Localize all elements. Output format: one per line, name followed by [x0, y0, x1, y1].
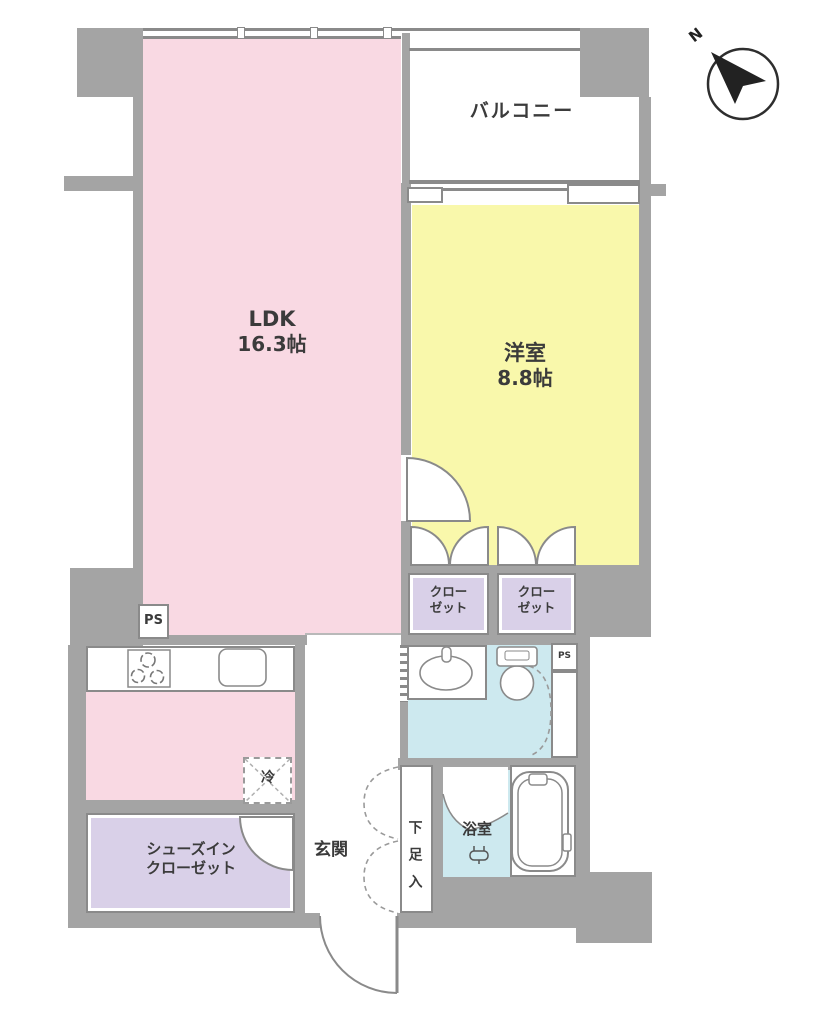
window-track-line	[443, 188, 567, 191]
vanity-counter	[407, 645, 487, 700]
opening-line	[305, 633, 401, 635]
kitchen-counter	[86, 646, 295, 692]
window-tick	[237, 27, 245, 39]
folding-door-dashed	[364, 767, 398, 913]
refrigerator-label: 冷	[253, 770, 283, 788]
compass-north-label: N	[682, 22, 709, 49]
wall	[77, 28, 143, 97]
western-room-label: 洋室 8.8帖	[435, 340, 615, 391]
wall	[405, 565, 576, 573]
western-room-size: 8.8帖	[435, 366, 615, 391]
wall	[402, 33, 410, 183]
ldk-size: 16.3帖	[182, 332, 362, 357]
wall	[433, 877, 577, 917]
ldk-label: LDK 16.3帖	[182, 306, 362, 357]
western-room-name: 洋室	[435, 340, 615, 366]
wall	[295, 637, 305, 805]
wall	[133, 95, 143, 573]
wall	[639, 97, 651, 573]
pipe-space-left-label: PS	[138, 604, 169, 639]
bathroom-label: 浴室	[448, 820, 506, 839]
closet-right-label: クローゼット	[497, 584, 576, 615]
closet-left-label: クローゼット	[410, 584, 487, 615]
shoe-cabinet-label: 下足入	[405, 800, 423, 920]
wall	[580, 28, 649, 97]
balcony-rail-line	[409, 48, 580, 51]
window-sash	[407, 187, 443, 203]
window-line	[143, 36, 401, 39]
bathtub-area	[510, 765, 576, 877]
compass-arrow	[711, 52, 766, 104]
wall	[651, 184, 666, 196]
compass-circle	[708, 49, 778, 119]
wall	[400, 702, 408, 758]
wall	[576, 565, 651, 637]
duct-strip	[551, 671, 578, 758]
balcony-label: バルコニー	[412, 100, 632, 124]
window-sash	[567, 184, 640, 204]
wall	[489, 573, 497, 635]
ldk-name: LDK	[182, 306, 362, 332]
wall	[64, 176, 138, 191]
shoes-in-closet-label: シューズインクローゼット	[96, 840, 286, 878]
pipe-space-right-label: PS	[551, 643, 578, 671]
wall	[576, 872, 652, 943]
window-tick	[383, 27, 392, 39]
window-tick	[310, 27, 318, 39]
floor-plan: LDK 16.3帖 洋室 8.8帖 バルコニー クローゼット クローゼット シュ…	[0, 0, 838, 1024]
wall	[401, 635, 576, 645]
wall	[576, 637, 590, 875]
wall	[68, 645, 86, 928]
wall	[401, 183, 411, 455]
entrance-label: 玄関	[300, 840, 362, 861]
wall	[68, 913, 320, 928]
window-line	[143, 28, 580, 31]
entry-door-arc	[320, 916, 397, 993]
